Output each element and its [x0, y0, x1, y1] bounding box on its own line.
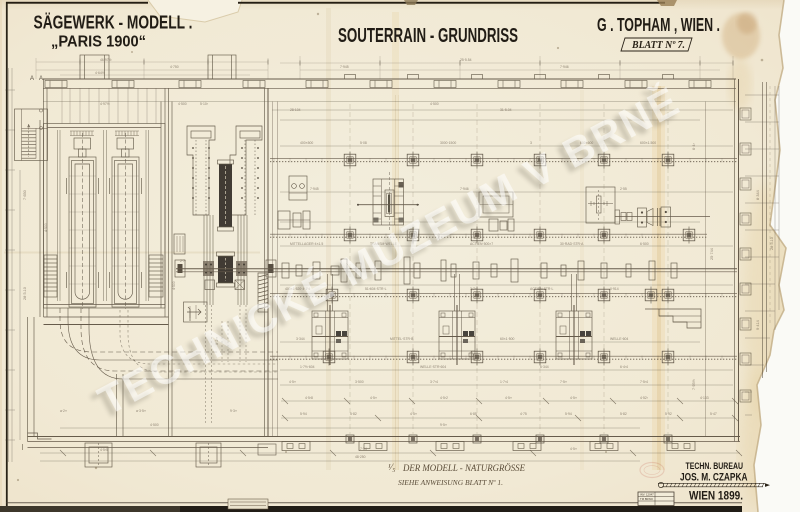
- svg-text:4·133: 4·133: [700, 396, 709, 400]
- svg-text:3: 3: [530, 141, 532, 145]
- svg-text:4·500: 4·500: [150, 423, 159, 427]
- svg-text:28·5.10: 28·5.10: [23, 287, 27, 300]
- svg-text:4·5››: 4·5››: [289, 380, 296, 384]
- svg-text:„PARIS 1900“: „PARIS 1900“: [51, 34, 146, 51]
- svg-text:4·5››: 4·5››: [370, 396, 377, 400]
- svg-text:5·08: 5·08: [360, 141, 367, 145]
- svg-text:9·5››: 9·5››: [440, 423, 447, 427]
- svg-text:4·500: 4·500: [44, 223, 48, 232]
- svg-text:5·82: 5·82: [620, 412, 627, 416]
- svg-text:5·10³: 5·10³: [200, 102, 209, 106]
- svg-text:4·5››: 4·5››: [570, 396, 577, 400]
- svg-text:5·94: 5·94: [565, 412, 572, 416]
- svg-text:BLATT Nº 7.: BLATT Nº 7.: [631, 39, 685, 51]
- svg-text:4·5›5: 4·5›5: [100, 448, 108, 452]
- svg-text:25·744: 25·744: [710, 248, 714, 260]
- svg-text:7·650: 7·650: [23, 190, 27, 200]
- svg-text:6·344: 6·344: [540, 365, 549, 369]
- svg-text:31·5.04: 31·5.04: [500, 108, 512, 112]
- svg-text:2·7›: 2·7›: [180, 259, 186, 263]
- svg-text:2·55: 2·55: [620, 187, 627, 191]
- svg-text:4·750: 4·750: [170, 65, 179, 69]
- svg-text:9·414: 9·414: [756, 320, 760, 330]
- svg-text:4·5››: 4·5››: [570, 447, 577, 451]
- svg-text:7·5››: 7·5››: [560, 380, 567, 384]
- svg-text:400×500: 400×500: [300, 141, 313, 145]
- svg-text:8·344: 8·344: [756, 190, 760, 200]
- svg-text:WELLE·STR·604: WELLE·STR·604: [420, 365, 446, 369]
- svg-text:5·82: 5·82: [350, 412, 357, 416]
- svg-text:ACTIEN·500×7: ACTIEN·500×7: [470, 242, 493, 246]
- svg-text:3·7›4: 3·7›4: [430, 380, 438, 384]
- svg-text:JOS. M. CZAPKA: JOS. M. CZAPKA: [680, 472, 748, 484]
- svg-text:WIEN 1899.: WIEN 1899.: [689, 491, 743, 503]
- svg-text:6·85: 6·85: [470, 412, 477, 416]
- svg-text:3·344: 3·344: [296, 337, 305, 341]
- svg-text:SIEHE ANWEISUNG BLATT Nº 1.: SIEHE ANWEISUNG BLATT Nº 1.: [398, 479, 503, 487]
- svg-text:7·945: 7·945: [310, 187, 319, 191]
- svg-text:TM BRNO: TM BRNO: [640, 497, 654, 501]
- svg-text:5·94: 5·94: [300, 412, 307, 416]
- svg-text:6·4›: 6·4›: [692, 143, 696, 150]
- svg-text:a·2››: a·2››: [60, 409, 67, 413]
- svg-text:MITTEL·STR·B: MITTEL·STR·B: [390, 337, 414, 341]
- svg-text:1·7½·604: 1·7½·604: [300, 365, 315, 369]
- svg-text:7·945: 7·945: [340, 65, 349, 69]
- svg-text:4·64½: 4·64½: [95, 71, 105, 75]
- svg-text:¹⁄₅: ¹⁄₅: [388, 462, 395, 472]
- svg-text:6·500: 6·500: [640, 242, 649, 246]
- svg-text:7·95½: 7·95½: [692, 378, 696, 390]
- svg-text:9·3››: 9·3››: [230, 409, 237, 413]
- svg-text:7·54: 7·54: [360, 447, 367, 451]
- svg-text:30·RAD·STR·A: 30·RAD·STR·A: [560, 242, 584, 246]
- svg-text:SÄGEWERK - MODELL .: SÄGEWERK - MODELL .: [34, 13, 193, 33]
- svg-text:28·5.10: 28·5.10: [770, 237, 774, 250]
- svg-text:25·5.54: 25·5.54: [460, 58, 472, 62]
- svg-text:7·946: 7·946: [560, 65, 569, 69]
- svg-text:5·92: 5·92: [665, 412, 672, 416]
- svg-text:TECHN. BUREAU: TECHN. BUREAU: [686, 461, 744, 471]
- svg-text:46·97½: 46·97½: [100, 58, 112, 62]
- svg-text:WELLE·604: WELLE·604: [610, 337, 628, 341]
- svg-text:3000·1500: 3000·1500: [440, 141, 456, 145]
- svg-text:60×1·500: 60×1·500: [500, 337, 515, 341]
- svg-text:6·4›4: 6·4›4: [620, 365, 628, 369]
- svg-text:4·500: 4·500: [172, 281, 176, 290]
- svg-text:28·104: 28·104: [290, 108, 301, 112]
- svg-text:1·7›4: 1·7›4: [500, 380, 508, 384]
- svg-text:DER MODELL - NATURGRÖSSE: DER MODELL - NATURGRÖSSE: [402, 463, 525, 473]
- svg-text:SOUTERRAIN - GRUNDRISS: SOUTERRAIN - GRUNDRISS: [338, 25, 518, 47]
- svg-text:5·47: 5·47: [710, 412, 717, 416]
- svg-text:INV. 12047: INV. 12047: [640, 493, 654, 497]
- svg-text:G . TOPHAM , WIEN .: G . TOPHAM , WIEN .: [597, 15, 720, 35]
- svg-text:4·5››: 4·5››: [410, 412, 417, 416]
- svg-text:4·5›8: 4·5›8: [305, 396, 313, 400]
- svg-text:7·5›4: 7·5›4: [640, 380, 648, 384]
- svg-text:4·52›: 4·52›: [640, 396, 648, 400]
- svg-text:4·5››: 4·5››: [505, 396, 512, 400]
- svg-text:3·7›4: 3·7›4: [470, 287, 478, 291]
- svg-text:4·5›2: 4·5›2: [440, 396, 448, 400]
- svg-text:4·500: 4·500: [178, 102, 187, 106]
- svg-text:4·75: 4·75: [520, 412, 527, 416]
- svg-text:A: A: [30, 76, 34, 82]
- svg-text:48·250: 48·250: [355, 455, 366, 459]
- svg-text:MITTELLAGER·4×1.5: MITTELLAGER·4×1.5: [290, 242, 323, 246]
- svg-text:A: A: [39, 76, 43, 82]
- svg-text:0·914: 0·914: [610, 287, 619, 291]
- svg-text:4·97½: 4·97½: [100, 102, 110, 106]
- svg-text:ACTIEN·STR·L: ACTIEN·STR·L: [530, 287, 553, 291]
- svg-text:3·500: 3·500: [355, 380, 364, 384]
- svg-text:4·500: 4·500: [430, 102, 439, 106]
